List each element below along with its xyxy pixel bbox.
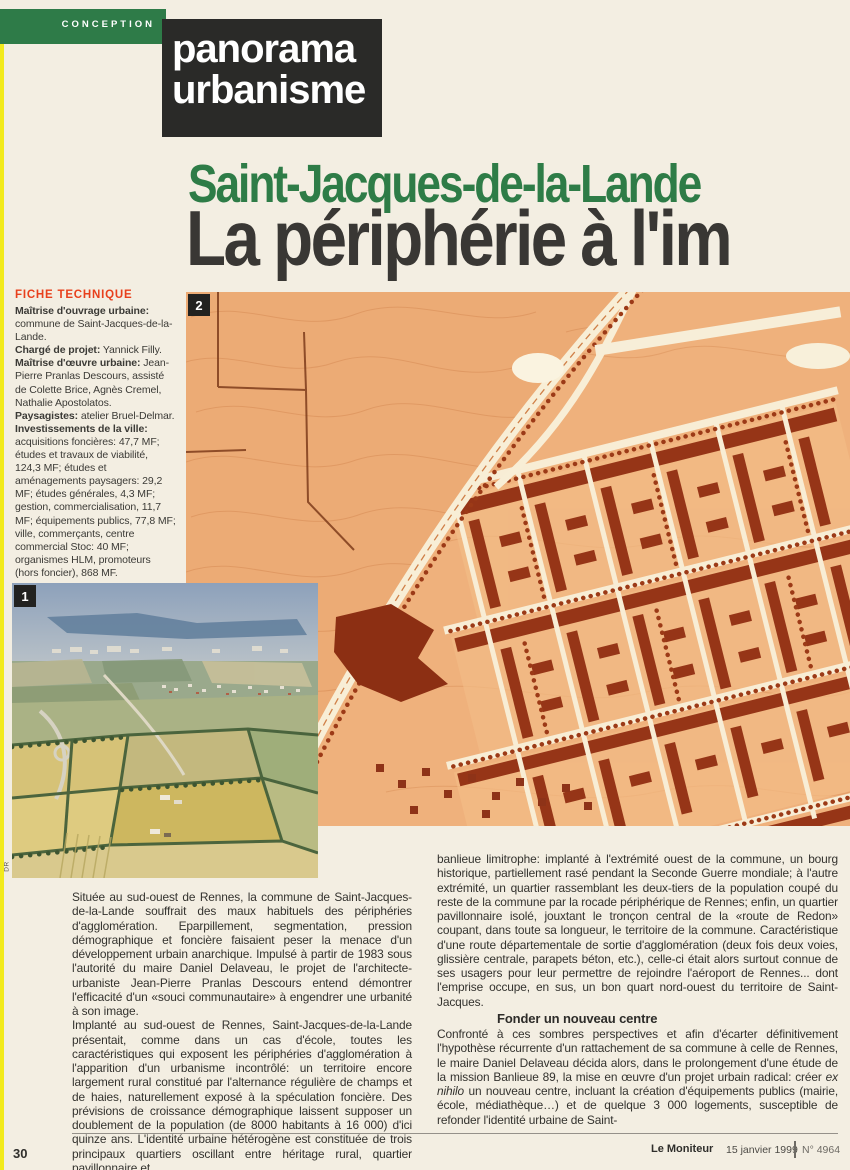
- subheading: Fonder un nouveau centre: [437, 1012, 838, 1026]
- publication-name: Le Moniteur: [651, 1143, 713, 1155]
- figure-number-badge: 2: [188, 294, 210, 316]
- rubric-line1: panorama: [172, 29, 382, 70]
- paragraph: Située au sud-ouest de Rennes, la commun…: [72, 890, 412, 1018]
- fiche-technique: FICHE TECHNIQUE Maîtrise d'ouvrage urbai…: [15, 289, 176, 580]
- issue-date: 15 janvier 1999: [726, 1144, 798, 1156]
- fiche-entry-label: Chargé de projet:: [15, 344, 100, 356]
- paragraph: Confronté à ces sombres perspectives et …: [437, 1027, 838, 1127]
- paragraph: Implanté au sud-ouest de Rennes, Saint-J…: [72, 1018, 412, 1170]
- fiche-entry: Investissements de la ville: acquisition…: [15, 423, 176, 580]
- rubric-box: panorama urbanisme: [162, 19, 382, 137]
- rubric-line2: urbanisme: [172, 70, 382, 111]
- fiche-entry: Chargé de projet: Yannick Filly.: [15, 344, 176, 357]
- page-number: 30: [13, 1146, 27, 1161]
- fiche-entry-text: atelier Bruel-Delmar.: [78, 410, 174, 422]
- footer-divider: [794, 1141, 796, 1158]
- fiche-entry-label: Paysagistes:: [15, 410, 78, 422]
- figure-number-badge: 1: [14, 585, 36, 607]
- fiche-entry-label: Investissements de la ville:: [15, 423, 148, 435]
- magazine-page: CONCEPTION panorama urbanisme Saint-Jacq…: [0, 0, 850, 1170]
- fiche-entry: Paysagistes: atelier Bruel-Delmar.: [15, 410, 176, 423]
- fiche-entry-text: Yannick Filly.: [100, 344, 162, 356]
- fiche-entry-text: commune de Saint-Jacques-de-la-Lande.: [15, 318, 172, 343]
- body-column-2: banlieue limitrophe: implanté à l'extrém…: [437, 852, 838, 1127]
- aerial-photo: [12, 583, 318, 878]
- body-column-1: Située au sud-ouest de Rennes, la commun…: [72, 890, 412, 1170]
- photo-credit: DR: [4, 861, 11, 871]
- paragraph: banlieue limitrophe: implanté à l'extrém…: [437, 852, 838, 1009]
- fiche-entry: Maîtrise d'ouvrage urbaine: commune de S…: [15, 305, 176, 344]
- fiche-entry-label: Maîtrise d'œuvre urbaine:: [15, 357, 140, 369]
- map-pond: [512, 353, 564, 383]
- map-clearing: [786, 343, 850, 369]
- page-title: La périphérie à l'im: [186, 198, 730, 278]
- page-edge-strip: [0, 43, 4, 1170]
- footer-rule: [72, 1133, 838, 1134]
- fiche-entry-text: acquisitions foncières: 47,7 MF; études …: [15, 436, 176, 579]
- aerial-photo-figure: 1 DR: [12, 583, 318, 878]
- fiche-entry-label: Maîtrise d'ouvrage urbaine:: [15, 305, 149, 317]
- issue-number: N° 4964: [802, 1144, 840, 1156]
- paragraph-text: un nouveau centre, incluant la création …: [437, 1084, 838, 1127]
- section-label: CONCEPTION: [62, 19, 155, 30]
- section-bar: CONCEPTION: [0, 9, 166, 44]
- fiche-heading: FICHE TECHNIQUE: [15, 289, 176, 301]
- fiche-entry: Maîtrise d'œuvre urbaine: Jean-Pierre Pr…: [15, 357, 176, 409]
- paragraph-text: Confronté à ces sombres perspectives et …: [437, 1027, 838, 1084]
